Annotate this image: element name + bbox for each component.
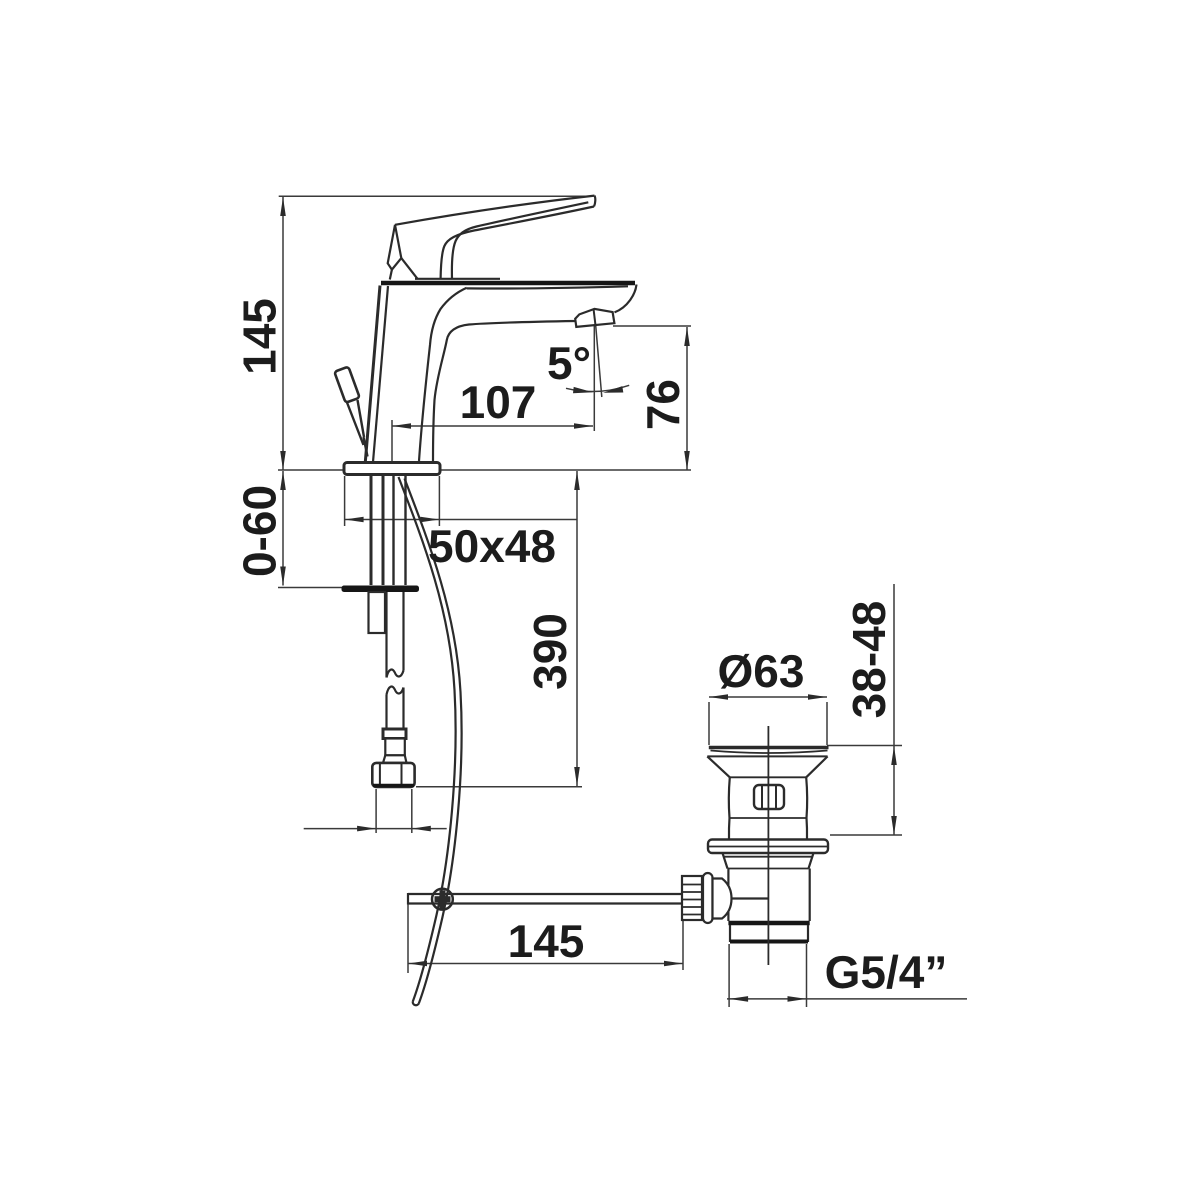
svg-text:145: 145 — [508, 915, 585, 967]
svg-text:50x48: 50x48 — [428, 520, 556, 572]
svg-text:145: 145 — [234, 298, 286, 375]
svg-text:76: 76 — [637, 379, 689, 430]
svg-text:Ø63: Ø63 — [718, 645, 805, 697]
svg-text:107: 107 — [460, 376, 537, 428]
svg-text:0-60: 0-60 — [234, 485, 286, 577]
svg-text:38-48: 38-48 — [843, 601, 895, 719]
svg-text:390: 390 — [524, 613, 576, 690]
svg-text:5°: 5° — [547, 337, 591, 389]
svg-text:G5/4”: G5/4” — [825, 946, 948, 998]
